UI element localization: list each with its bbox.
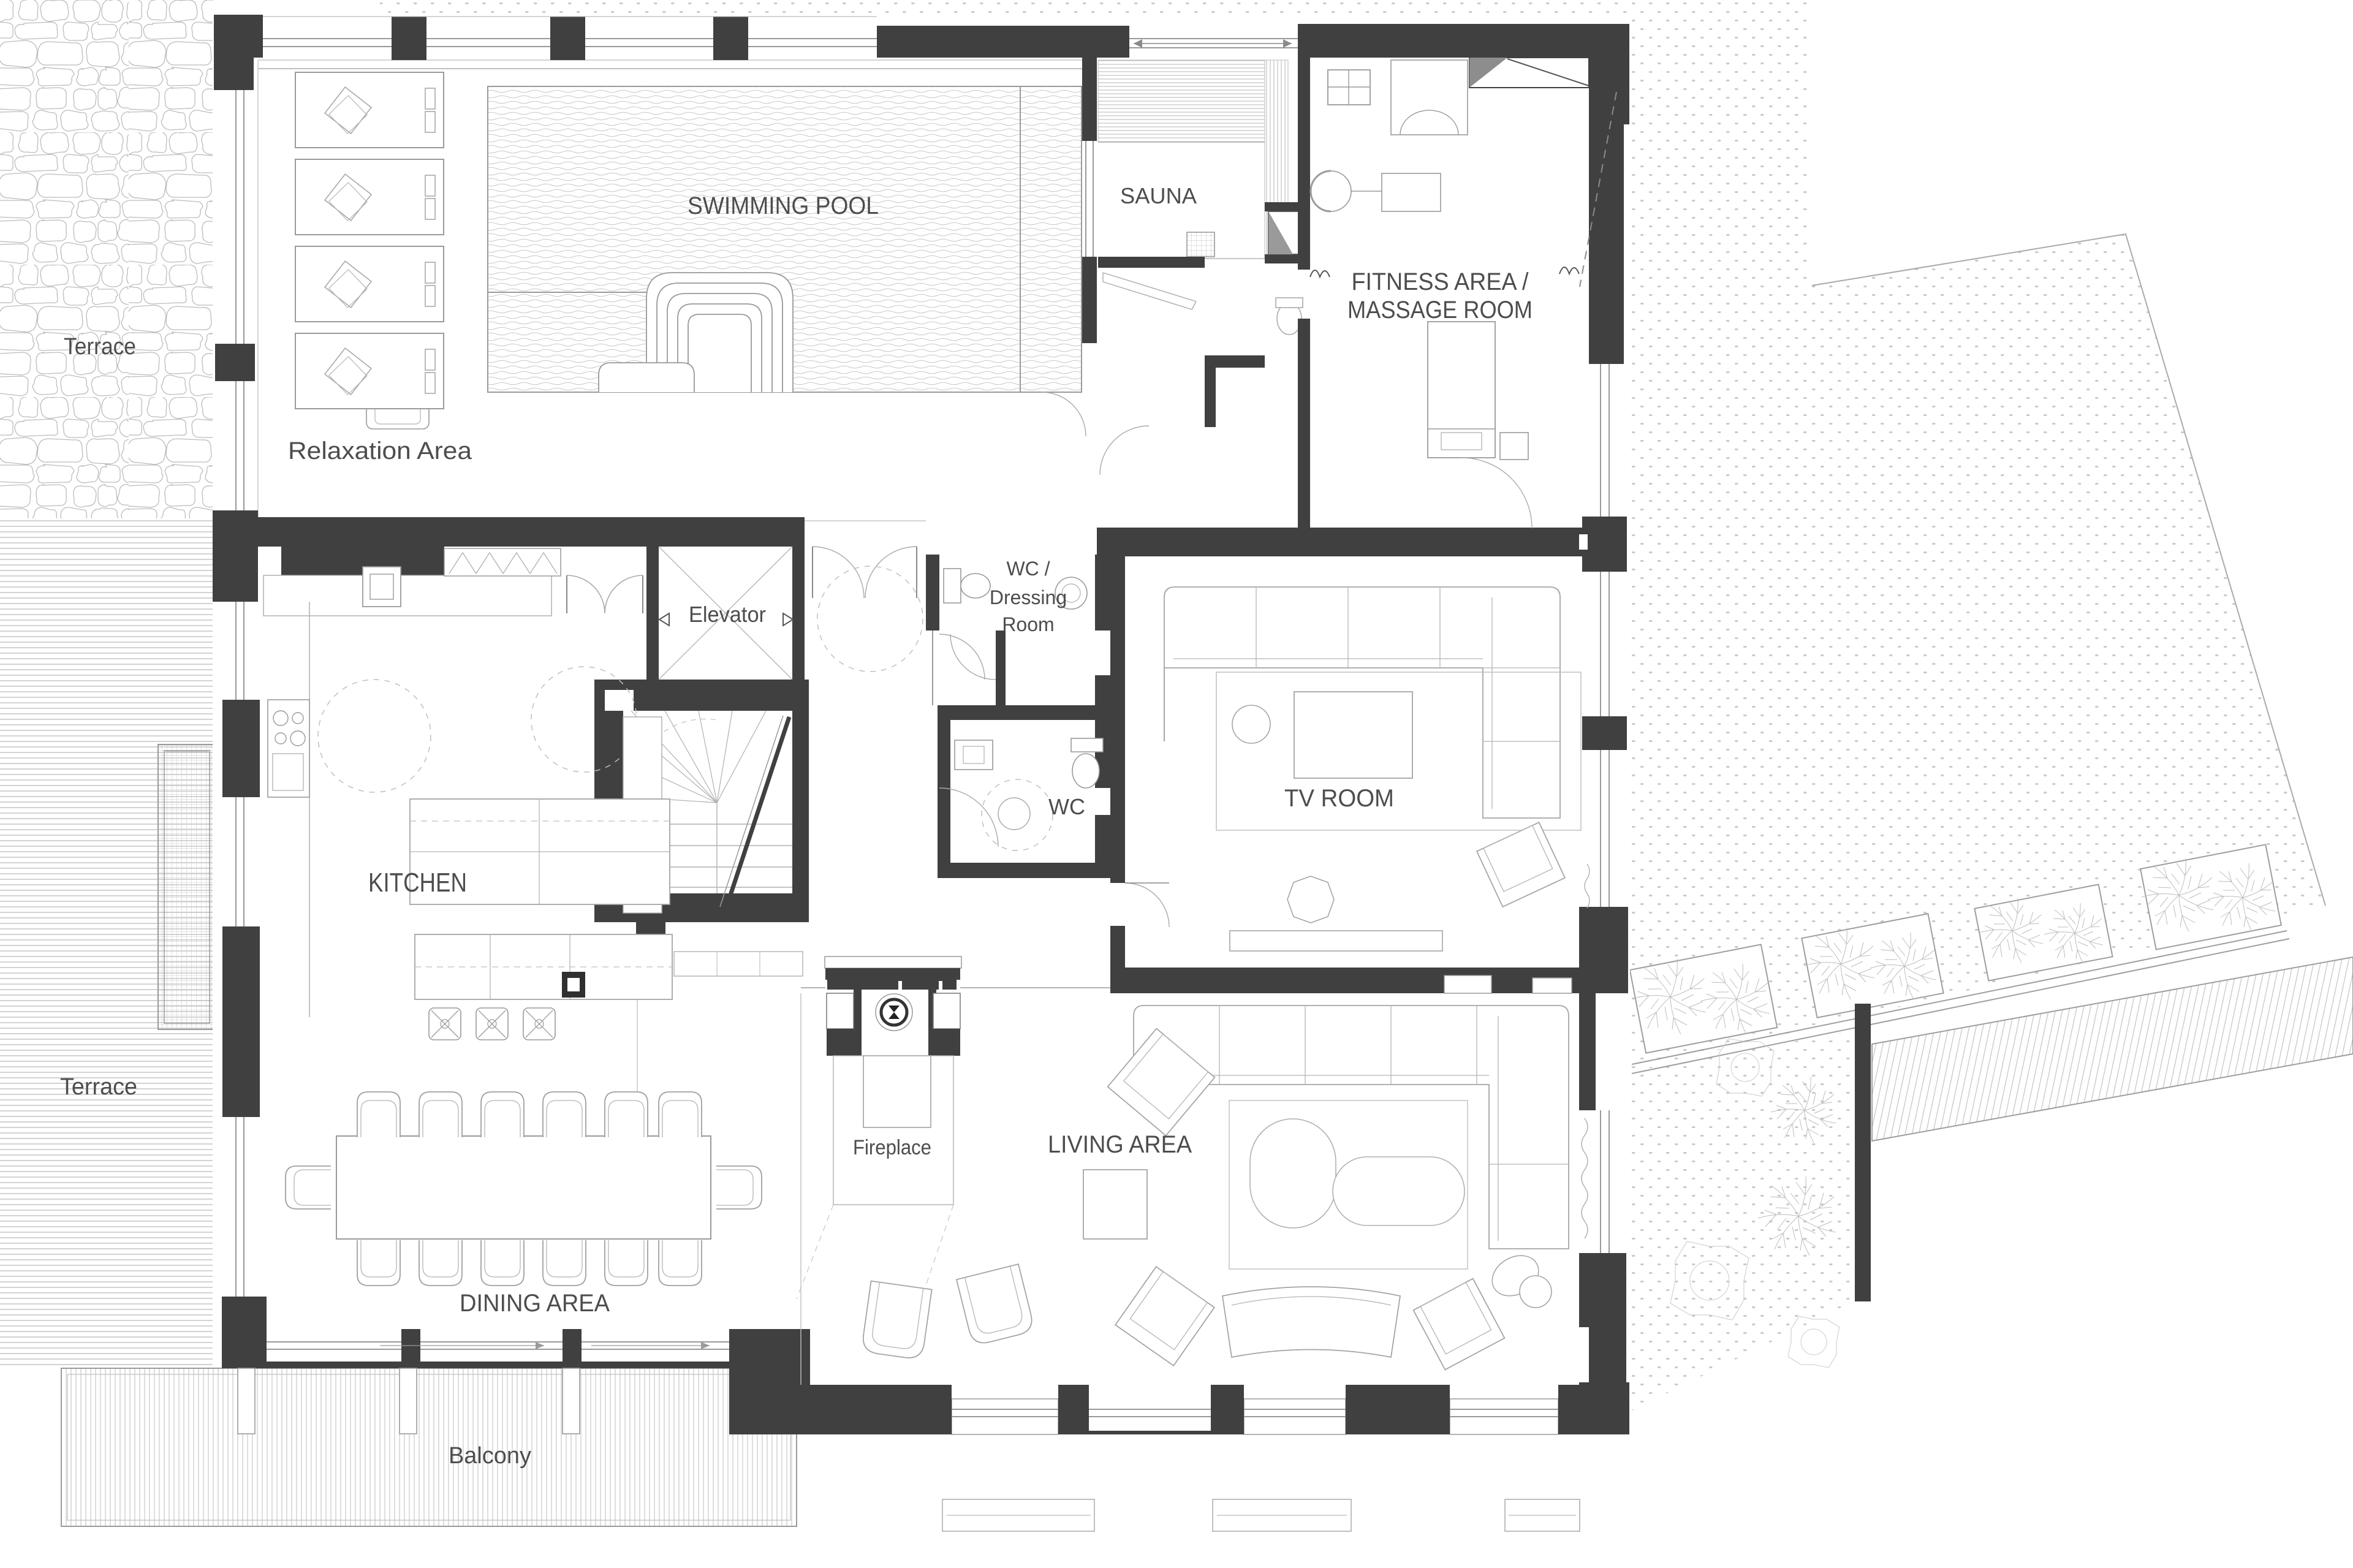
- svg-text:Terrace: Terrace: [64, 334, 136, 360]
- svg-text:Balcony: Balcony: [449, 1443, 531, 1469]
- svg-text:Relaxation Area: Relaxation Area: [288, 437, 472, 464]
- svg-text:WC: WC: [1048, 794, 1085, 819]
- svg-text:Dressing: Dressing: [990, 586, 1067, 608]
- svg-text:TV ROOM: TV ROOM: [1284, 785, 1394, 812]
- svg-text:KITCHEN: KITCHEN: [368, 868, 467, 898]
- svg-text:MASSAGE ROOM: MASSAGE ROOM: [1347, 297, 1533, 324]
- svg-text:Elevator: Elevator: [689, 602, 766, 627]
- svg-text:LIVING AREA: LIVING AREA: [1048, 1131, 1192, 1158]
- svg-text:FITNESS AREA /: FITNESS AREA /: [1352, 268, 1529, 295]
- svg-text:DINING AREA: DINING AREA: [460, 1290, 610, 1317]
- svg-text:Terrace: Terrace: [60, 1074, 137, 1100]
- svg-text:SWIMMING POOL: SWIMMING POOL: [688, 192, 879, 219]
- svg-text:Fireplace: Fireplace: [853, 1136, 931, 1159]
- svg-text:WC /: WC /: [1006, 558, 1050, 580]
- svg-text:SAUNA: SAUNA: [1120, 183, 1197, 208]
- svg-text:Room: Room: [1002, 613, 1054, 635]
